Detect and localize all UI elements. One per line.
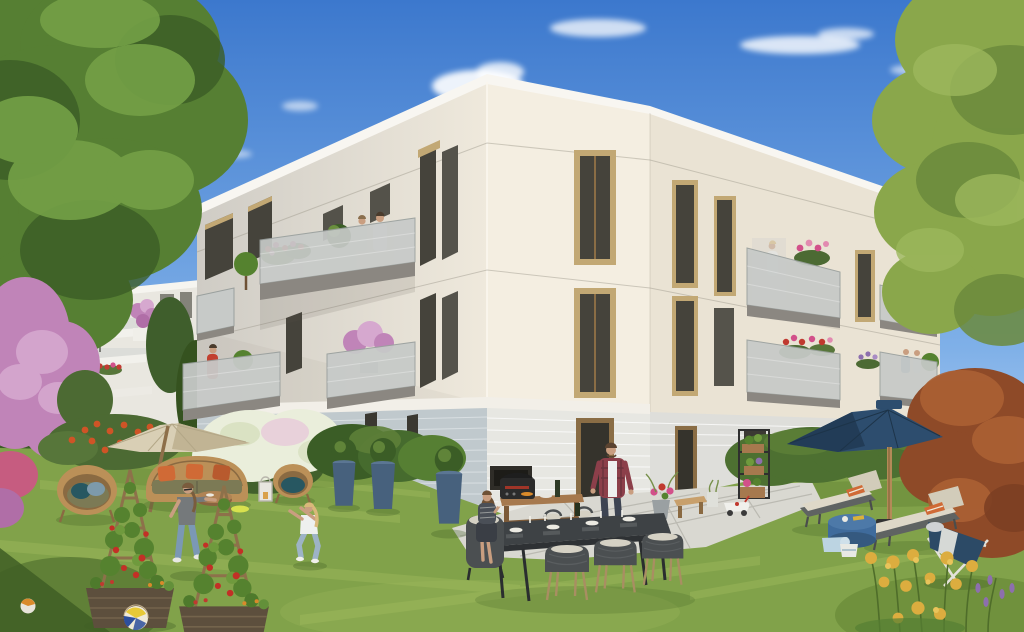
balcony-upper-far-left: [197, 288, 234, 341]
render-canvas: [0, 0, 1024, 632]
coffee-cup: [496, 501, 501, 506]
balcony-right-lower: [747, 335, 840, 408]
table-wine-bottle: [575, 503, 580, 516]
small-ball: [21, 599, 36, 614]
wine-bottle: [555, 480, 560, 497]
rattan-armchair-left: [56, 465, 118, 526]
frisbee: [231, 506, 249, 513]
volleyball: [124, 605, 148, 630]
rattan-armchair-right: [271, 464, 315, 506]
garden-render: [0, 0, 1024, 632]
